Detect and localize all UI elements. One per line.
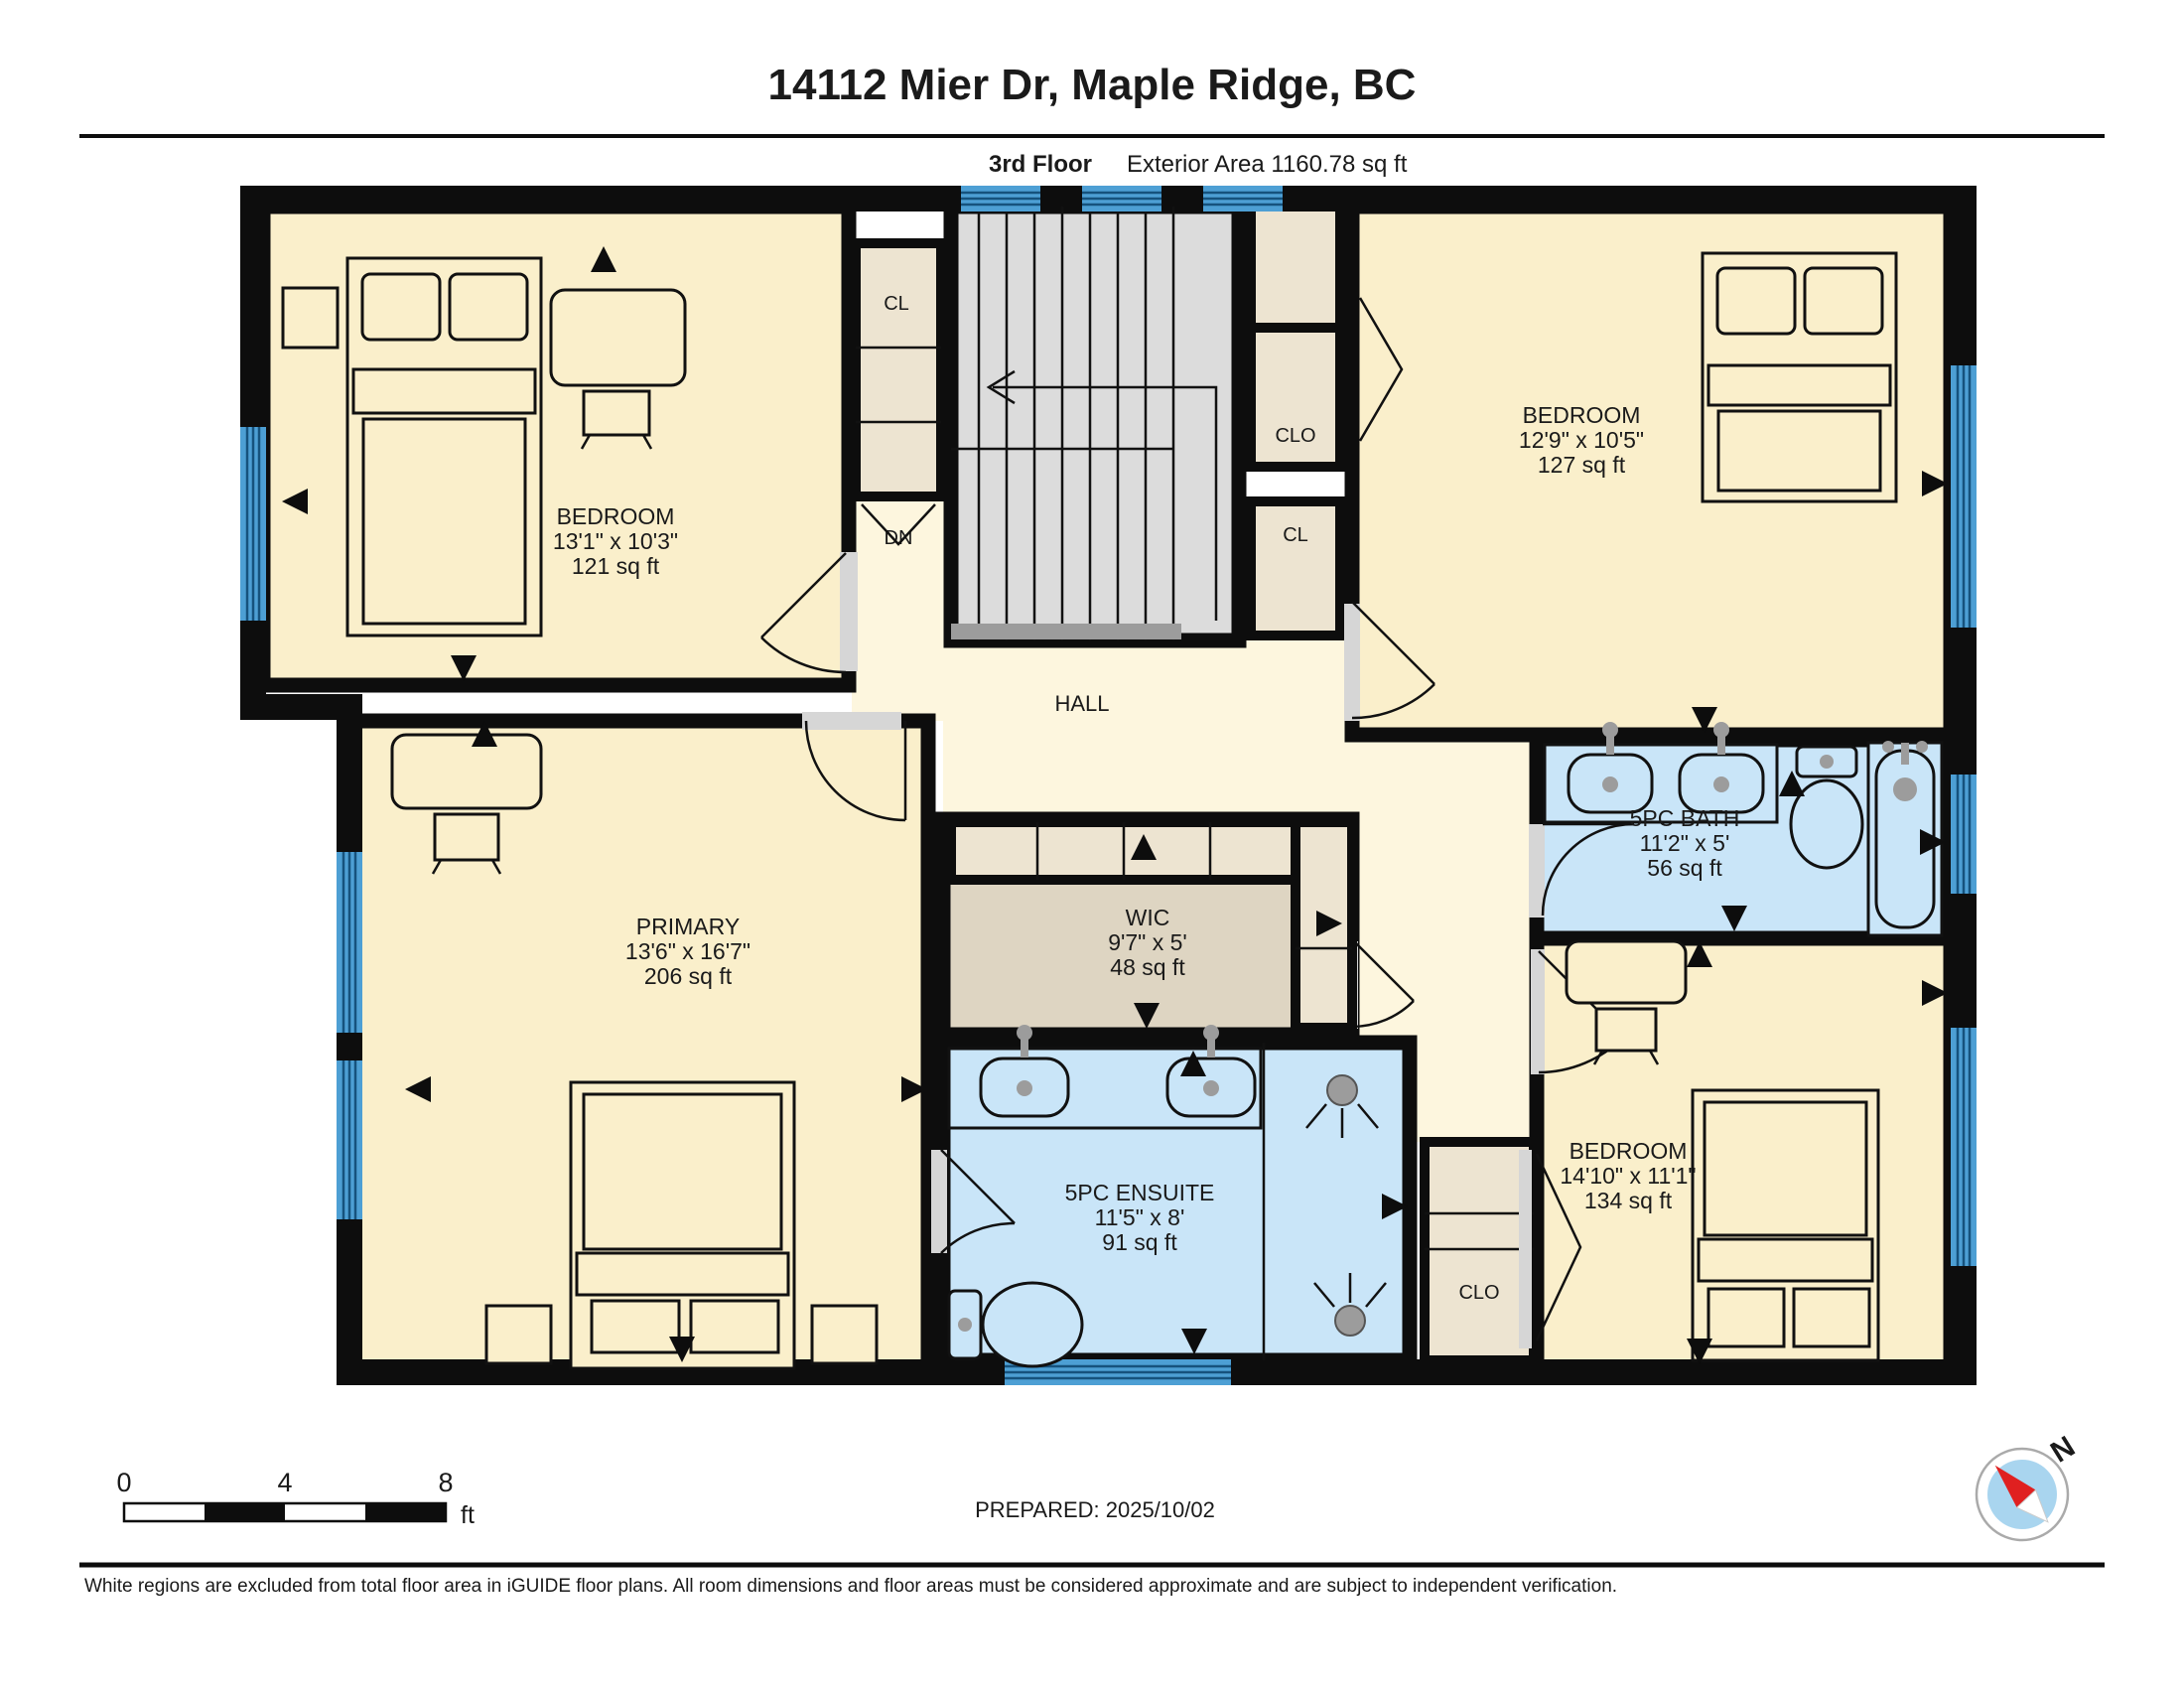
closet-label-cl-top-right: CL [1283,524,1308,546]
room-label-primary-dims: 13'6" x 16'7" [625,938,751,964]
room-label-wic-area: 48 sq ft [1110,954,1185,980]
closet-label-cl-top-left: CL [884,293,909,315]
compass-icon: N [1977,1430,2081,1540]
room-label-hall: HALL [1054,691,1109,716]
scale-bar: 0 4 8 ft [116,1468,474,1529]
room-label-bedroom-tr-dims: 12'9" x 10'5" [1519,427,1644,453]
bed [571,1082,794,1368]
exterior-area-label: Exterior Area 1160.78 sq ft [1127,151,1408,178]
room-label-bedroom-tr-area: 127 sq ft [1538,452,1626,478]
room-label-bath-dims: 11'2" x 5' [1640,830,1730,856]
stairwell [951,207,1239,640]
prepared-date: PREPARED: 2025/10/02 [975,1497,1215,1522]
window-top-3 [1203,186,1283,212]
scale-tick-0: 0 [116,1468,131,1497]
room-label-ensuite-name: 5PC ENSUITE [1065,1180,1215,1205]
room-label-bedroom-tl-name: BEDROOM [557,503,675,529]
room-label-bath-name: 5PC BATH [1630,805,1740,831]
window-top-1 [961,186,1040,212]
closet-top-left [856,243,941,496]
room-label-bedroom-br-name: BEDROOM [1570,1138,1688,1164]
disclaimer-text: White regions are excluded from total fl… [84,1576,1617,1597]
nightstand [812,1306,877,1363]
bed [1693,1090,1878,1360]
closet-top-right-column [1251,207,1340,635]
room-label-wic-dims: 9'7" x 5' [1108,929,1187,955]
page-title: 14112 Mier Dr, Maple Ridge, BC [768,61,1417,109]
toilet [949,1283,1082,1366]
room-label-primary-area: 206 sq ft [644,963,733,989]
window-right-bath [1951,775,1977,894]
window-right-bedroom-tr [1951,365,1977,628]
floor-label: 3rd Floor [989,151,1092,178]
window-right-bedroom-br [1951,1028,1977,1266]
room-label-bedroom-tl-dims: 13'1" x 10'3" [553,528,678,554]
window-primary-2 [337,1060,362,1219]
bed [347,258,541,635]
closet-label-clo-bottom-right: CLO [1458,1282,1499,1304]
room-label-bedroom-br-area: 134 sq ft [1584,1188,1673,1213]
window-primary-1 [337,852,362,1033]
closet-label-clo-top-right: CLO [1275,425,1315,447]
bed [1703,253,1896,501]
window-left-bedroom [240,427,266,621]
toilet [1791,747,1862,868]
room-label-bath-area: 56 sq ft [1647,855,1722,881]
closet-bottom-right [1425,1142,1534,1360]
floor-plan-page: 14112 Mier Dr, Maple Ridge, BC 3rd Floor… [0,0,2184,1688]
room-label-wic-name: WIC [1126,905,1170,930]
window-top-2 [1082,186,1161,212]
scale-unit: ft [461,1501,475,1529]
scale-tick-8: 8 [438,1468,453,1497]
room-label-bedroom-tl-area: 121 sq ft [572,553,660,579]
nightstand [486,1306,551,1363]
room-label-primary-name: PRIMARY [636,914,740,939]
room-label-bedroom-tr-name: BEDROOM [1523,402,1641,428]
room-label-ensuite-area: 91 sq ft [1102,1229,1177,1255]
room-label-ensuite-dims: 11'5" x 8' [1095,1204,1185,1230]
nightstand [283,288,338,348]
room-label-bedroom-br-dims: 14'10" x 11'1" [1560,1163,1696,1189]
scale-tick-4: 4 [277,1468,292,1497]
